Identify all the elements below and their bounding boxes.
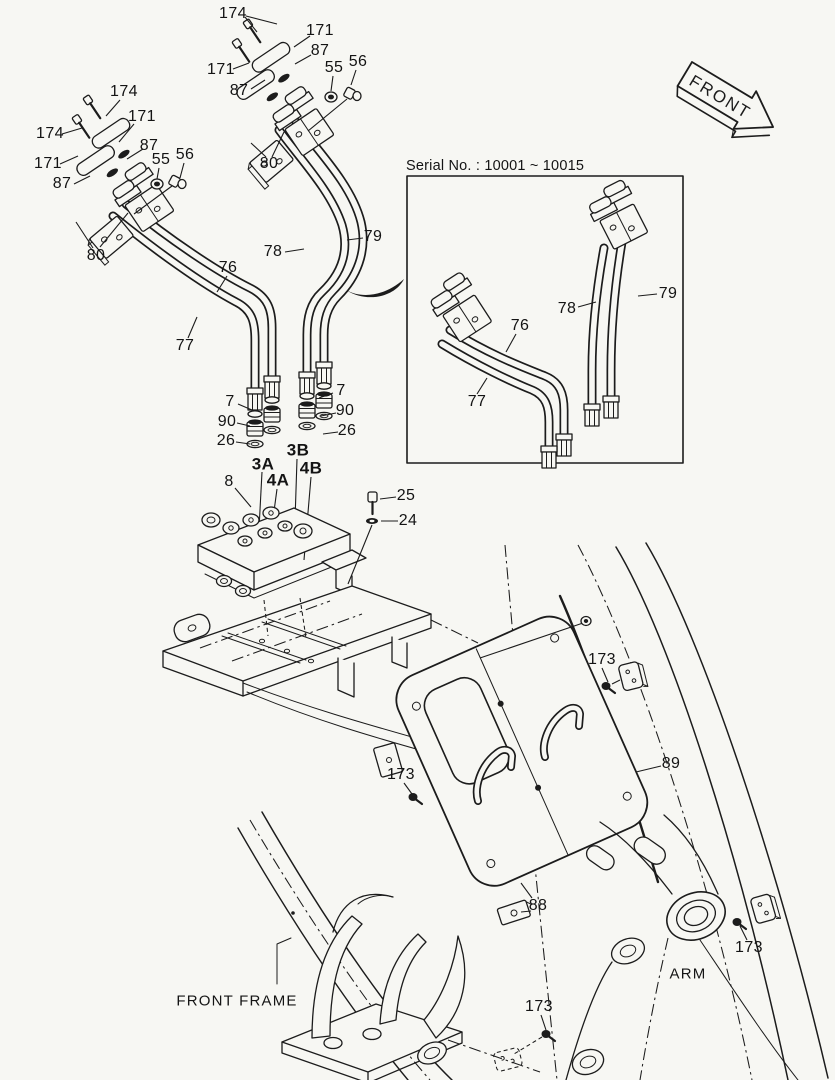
callout-56: 56 — [349, 54, 368, 70]
callout-25: 25 — [397, 488, 416, 504]
callout-26: 26 — [338, 423, 357, 439]
callout-76: 76 — [511, 318, 530, 334]
clamp-173-bottom — [493, 1030, 555, 1072]
serial-inset-box — [407, 176, 683, 468]
callout-24: 24 — [399, 513, 418, 529]
callout-174: 174 — [36, 126, 64, 142]
callout-arm: ARM — [670, 967, 707, 982]
serial-number-title: Serial No. : 10001 ~ 10015 — [406, 158, 584, 174]
callout-4a: 4A — [267, 472, 290, 489]
arm-structure — [566, 815, 798, 1080]
callout-89: 89 — [662, 756, 681, 772]
callout-55: 55 — [325, 60, 344, 76]
callout-56: 56 — [176, 147, 195, 163]
callout-80: 80 — [87, 248, 106, 264]
callout-80: 80 — [260, 156, 279, 172]
callout-173: 173 — [588, 652, 616, 668]
callout-4b: 4B — [300, 460, 323, 477]
callout-87: 87 — [230, 83, 249, 99]
callout-3b: 3B — [287, 442, 310, 459]
callout-171: 171 — [207, 62, 235, 78]
callout-87: 87 — [311, 43, 330, 59]
callout-79: 79 — [364, 229, 383, 245]
mounting-frame — [163, 586, 431, 697]
callout-8: 8 — [224, 474, 233, 490]
callout-55: 55 — [152, 152, 171, 168]
callout-171: 171 — [306, 23, 334, 39]
front-direction-arrow: FRONT — [669, 55, 785, 153]
callout-173: 173 — [735, 940, 763, 956]
callout-174: 174 — [219, 6, 247, 22]
callout-173: 173 — [387, 767, 415, 783]
callout-78: 78 — [558, 301, 577, 317]
callout-7: 7 — [225, 394, 234, 410]
callout-171: 171 — [128, 109, 156, 125]
callout-77: 77 — [176, 338, 195, 354]
parts-diagram-page: FRONT — [0, 0, 835, 1080]
callout-26: 26 — [217, 433, 236, 449]
callout-88: 88 — [529, 898, 548, 914]
pipe-cluster-left — [18, 85, 187, 267]
callout-79: 79 — [659, 286, 678, 302]
callout-77: 77 — [468, 394, 487, 410]
clamp-173-arm — [733, 892, 781, 929]
callout-76: 76 — [219, 260, 238, 276]
callout-front-frame: FRONT FRAME — [176, 994, 297, 1009]
callout-90: 90 — [336, 403, 355, 419]
callout-173: 173 — [525, 999, 553, 1015]
callout-174: 174 — [110, 84, 138, 100]
callout-90: 90 — [218, 414, 237, 430]
callout-171: 171 — [34, 156, 62, 172]
callout-7: 7 — [336, 383, 345, 399]
pipes-main — [113, 122, 363, 410]
callout-78: 78 — [264, 244, 283, 260]
control-valve-block — [198, 492, 378, 598]
callout-87: 87 — [53, 176, 72, 192]
